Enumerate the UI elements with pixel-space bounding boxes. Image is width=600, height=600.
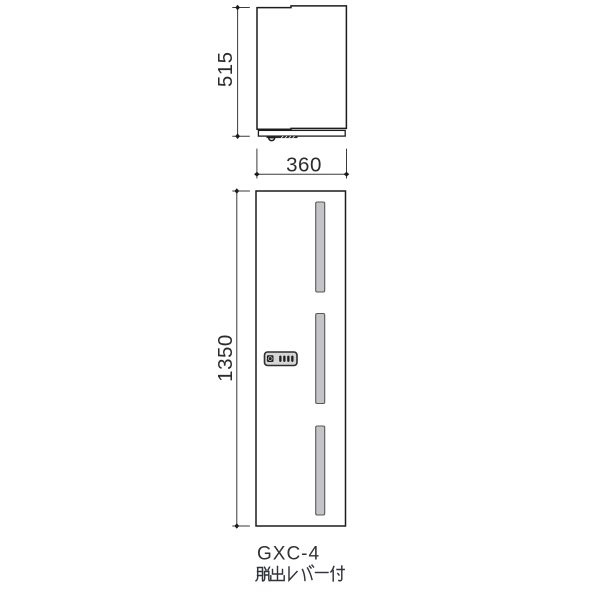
svg-text:515: 515 xyxy=(214,51,237,87)
svg-text:360: 360 xyxy=(286,153,322,176)
svg-text:GXC-4: GXC-4 xyxy=(257,543,320,564)
svg-text:1350: 1350 xyxy=(214,334,237,382)
